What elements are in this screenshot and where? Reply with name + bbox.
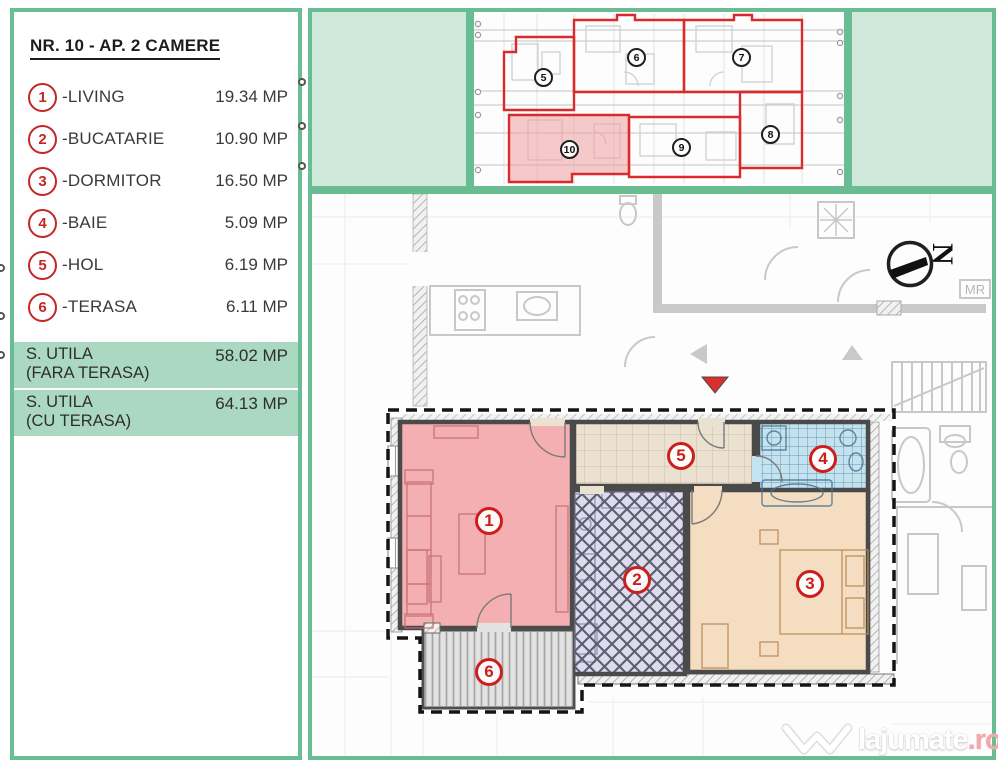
watermark-text: lajumate.ro — [858, 724, 998, 757]
north-compass: N — [889, 243, 960, 286]
room-number-badge: 6 — [28, 293, 57, 322]
legend-row-baie: 4 -BAIE 5.09 MP — [28, 202, 288, 244]
neighbor-entrance-arrow-up — [842, 345, 863, 360]
room-number-badge: 1 — [28, 83, 57, 112]
legend-panel: NR. 10 - AP. 2 CAMERE 1 -LIVING 19.34 MP… — [10, 8, 302, 760]
room-number-badge: 3 — [28, 167, 57, 196]
grid-bubble — [298, 78, 306, 86]
legend-row-hol: 5 -HOL 6.19 MP — [28, 244, 288, 286]
room-area: 16.50 MP — [215, 171, 288, 191]
floorplan-drawing: MR MR N — [312, 194, 992, 756]
grid-bubble — [298, 122, 306, 130]
watermark-logo-icon — [778, 716, 856, 762]
site-unit-label-9: 9 — [672, 138, 691, 157]
plan-room-label-4: 4 — [809, 445, 837, 473]
room-name: -DORMITOR — [62, 171, 162, 191]
room-name: -TERASA — [62, 297, 137, 317]
legend-row-terasa: 6 -TERASA 6.11 MP — [28, 286, 288, 328]
site-key-plan: 5 6 7 8 9 10 — [470, 8, 848, 190]
plan-room-label-2: 2 — [623, 566, 651, 594]
room-name: -BAIE — [62, 213, 107, 233]
legend-row-bucatarie: 2 -BUCATARIE 10.90 MP — [28, 118, 288, 160]
room-area: 6.11 MP — [226, 297, 288, 317]
plan-room-label-3: 3 — [796, 570, 824, 598]
floorplan-listing-image: NR. 10 - AP. 2 CAMERE 1 -LIVING 19.34 MP… — [0, 0, 998, 768]
room-name: -LIVING — [62, 87, 125, 107]
site-unit-label-8: 8 — [761, 125, 780, 144]
north-letter: N — [926, 243, 959, 265]
room-name: -BUCATARIE — [62, 129, 164, 149]
legend-row-living: 1 -LIVING 19.34 MP — [28, 76, 288, 118]
site-unit-label-10: 10 — [560, 140, 579, 159]
grid-bubble — [0, 351, 5, 359]
summary-label: S. UTILA (CU TERASA) — [26, 393, 131, 432]
room-name: -HOL — [62, 255, 103, 275]
summary-row-fara-terasa: S. UTILA (FARA TERASA) 58.02 MP — [14, 342, 298, 388]
watermark-tld: .ro — [968, 724, 998, 756]
page-title: NR. 10 - AP. 2 CAMERE — [30, 36, 220, 60]
summary-area: 58.02 MP — [215, 345, 288, 366]
green-spacer-right — [848, 8, 996, 190]
room-area: 5.09 MP — [225, 213, 288, 233]
site-unit-label-6: 6 — [627, 48, 646, 67]
summary-label: S. UTILA (FARA TERASA) — [26, 345, 149, 384]
plan-room-label-5: 5 — [667, 442, 695, 470]
room-number-badge: 5 — [28, 251, 57, 280]
exterior-wall-hatch-right — [870, 422, 879, 672]
room-area: 19.34 MP — [215, 87, 288, 107]
site-unit-label-7: 7 — [732, 48, 751, 67]
room-area: 6.19 MP — [225, 255, 288, 275]
green-spacer-left — [308, 8, 470, 190]
entrance-arrow — [702, 377, 728, 393]
room-area: 10.90 MP — [215, 129, 288, 149]
watermark-brand: lajumate — [858, 724, 968, 756]
watermark: lajumate.ro — [778, 716, 998, 766]
summary-area: 64.13 MP — [215, 393, 288, 414]
plan-room-label-1: 1 — [475, 507, 503, 535]
legend-rows: 1 -LIVING 19.34 MP 2 -BUCATARIE 10.90 MP… — [14, 66, 298, 328]
room-number-badge: 2 — [28, 125, 57, 154]
site-plan-drawing — [474, 12, 844, 186]
legend-row-dormitor: 3 -DORMITOR 16.50 MP — [28, 160, 288, 202]
floorplan-main: MR MR N — [308, 190, 996, 760]
room-number-badge: 4 — [28, 209, 57, 238]
plan-room-label-6: 6 — [475, 658, 503, 686]
site-unit-label-5: 5 — [534, 68, 553, 87]
grid-bubble — [0, 264, 5, 272]
neighbor-entrance-arrow-left — [690, 344, 707, 364]
grid-bubble — [298, 162, 306, 170]
grid-bubble — [0, 312, 5, 320]
summary-rows: S. UTILA (FARA TERASA) 58.02 MP S. UTILA… — [14, 342, 298, 436]
summary-row-cu-terasa: S. UTILA (CU TERASA) 64.13 MP — [14, 390, 298, 436]
background-label-mr-1: MR — [965, 282, 985, 297]
